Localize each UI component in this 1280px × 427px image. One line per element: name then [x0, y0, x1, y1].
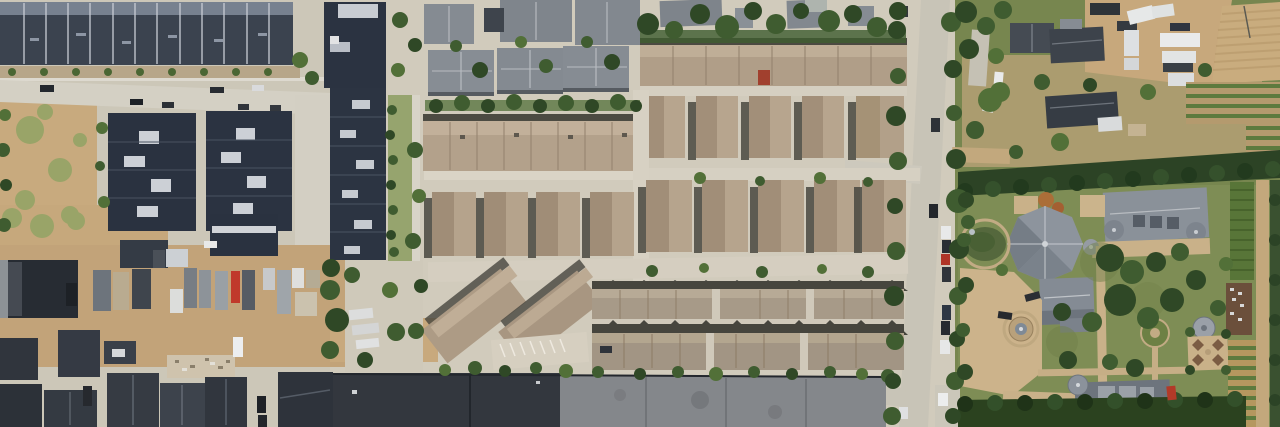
aerial-photo-svg — [0, 0, 1280, 427]
aerial-photo — [0, 0, 1280, 427]
